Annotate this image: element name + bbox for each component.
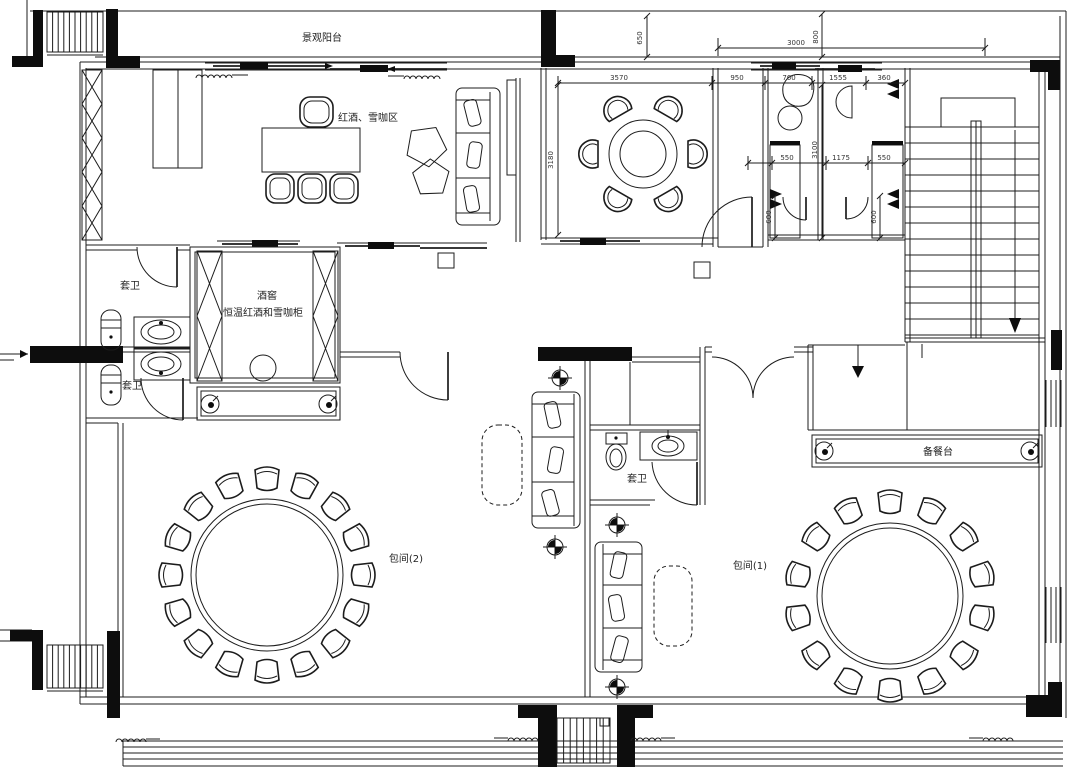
svg-text:3570: 3570 <box>610 74 628 82</box>
round-table-private-room-1 <box>784 490 996 702</box>
staircase-right <box>905 98 1045 342</box>
label-private-room-2: 包间(2) <box>389 552 423 565</box>
entry-steps-top-left <box>47 12 103 55</box>
chair <box>878 679 902 703</box>
label-serving-counter: 备餐台 <box>923 445 953 458</box>
tasting-table <box>262 128 360 172</box>
chair <box>833 665 865 697</box>
chair <box>340 523 371 554</box>
chair <box>288 471 319 502</box>
pouf-2 <box>413 159 449 194</box>
svg-text:800: 800 <box>812 30 820 43</box>
chair <box>318 490 352 524</box>
room1-ensuite-fixtures <box>606 430 697 470</box>
walls <box>0 0 1066 766</box>
svg-text:760: 760 <box>782 74 795 82</box>
room-labels: 景观阳台 红酒、雪咖区 酒窖 恒温红酒和雪咖柜 套卫 套卫 套卫 包间(2) 包… <box>120 31 953 572</box>
round-table-private-room-2 <box>159 467 375 683</box>
chair <box>968 603 996 632</box>
coffee-table-room2 <box>482 425 522 505</box>
label-ensuite-room1: 套卫 <box>627 472 647 485</box>
svg-text:650: 650 <box>636 31 644 44</box>
label-ensuite-top: 套卫 <box>120 279 140 292</box>
chair <box>968 561 996 590</box>
chair <box>182 626 216 660</box>
label-wine-coffee-area: 红酒、雪咖区 <box>338 111 398 124</box>
dining-round-table <box>579 91 707 216</box>
chair <box>784 603 812 632</box>
sofa-room2 <box>532 392 580 528</box>
section-marker <box>0 350 28 360</box>
sofa-room1 <box>595 542 642 672</box>
chair <box>340 596 371 627</box>
chair <box>579 140 598 168</box>
chair <box>352 563 376 587</box>
chair <box>159 563 183 587</box>
chair <box>784 561 812 590</box>
chair <box>833 495 865 527</box>
svg-text:600: 600 <box>870 210 878 223</box>
chair <box>599 186 633 217</box>
svg-text:600: 600 <box>765 210 773 223</box>
chair <box>599 91 633 122</box>
dim-row-mid: 550 1175 550 <box>745 154 908 170</box>
wash-basin-semicircle <box>836 86 852 118</box>
svg-text:3100: 3100 <box>811 141 819 159</box>
pouf-1 <box>407 128 447 167</box>
lounge-sofa-wine-area <box>456 88 500 225</box>
lounge-sofas <box>482 366 692 699</box>
floor-plan-canvas: 650 3000 800 3570 950 760 1555 360 3180 <box>0 0 1080 776</box>
svg-text:3000: 3000 <box>787 39 805 47</box>
dim-650: 650 <box>636 13 650 60</box>
dim-3000: 3000 <box>715 38 988 56</box>
chair <box>878 490 902 514</box>
console-cabinet <box>507 80 516 175</box>
svg-text:360: 360 <box>877 74 890 82</box>
sink-counter-2 <box>134 349 190 380</box>
curtain-coils <box>116 75 1013 742</box>
toilet-1 <box>101 310 121 350</box>
chair <box>182 490 216 524</box>
dim-800: 800 <box>812 11 825 60</box>
wine-cellar <box>190 247 340 420</box>
chair <box>255 467 279 491</box>
toilet-2 <box>101 365 121 405</box>
chair <box>915 665 947 697</box>
chair <box>800 521 833 554</box>
label-private-room-1: 包间(1) <box>733 559 767 572</box>
svg-text:1175: 1175 <box>832 154 850 162</box>
label-ensuite-bottom: 套卫 <box>122 379 142 392</box>
corridor-arrows <box>852 344 922 378</box>
ceiling-fixture-icons <box>543 366 629 699</box>
svg-text:550: 550 <box>877 154 890 162</box>
coffee-table-room1 <box>654 566 692 646</box>
svg-text:3180: 3180 <box>547 151 555 169</box>
svg-text:550: 550 <box>780 154 793 162</box>
chair <box>215 648 246 679</box>
cellar-counter-speakers <box>201 395 337 413</box>
label-cellar-title: 酒窖 <box>257 289 277 302</box>
wine-coffee-furniture <box>82 70 516 240</box>
chair <box>915 495 947 527</box>
svg-text:1555: 1555 <box>829 74 847 82</box>
chair <box>653 91 687 122</box>
chair <box>163 523 194 554</box>
chair <box>318 626 352 660</box>
svg-text:950: 950 <box>730 74 743 82</box>
structural-columns <box>10 9 1062 767</box>
floor-plan-drawing: 650 3000 800 3570 950 760 1555 360 3180 <box>0 0 1080 776</box>
dim-row-top: 3570 950 760 1555 360 <box>555 74 908 90</box>
chair <box>947 521 980 554</box>
chair <box>163 596 194 627</box>
chair <box>653 186 687 217</box>
chair <box>688 140 707 168</box>
exterior-steps-bottom-left <box>47 645 103 691</box>
chair <box>215 471 246 502</box>
dim-3180: 3180 <box>547 82 561 238</box>
chair <box>288 648 319 679</box>
label-balcony: 景观阳台 <box>302 31 342 44</box>
label-cellar-subtitle: 恒温红酒和雪咖柜 <box>223 306 303 319</box>
chair <box>800 638 833 671</box>
chair <box>947 638 980 671</box>
chair <box>255 660 279 684</box>
